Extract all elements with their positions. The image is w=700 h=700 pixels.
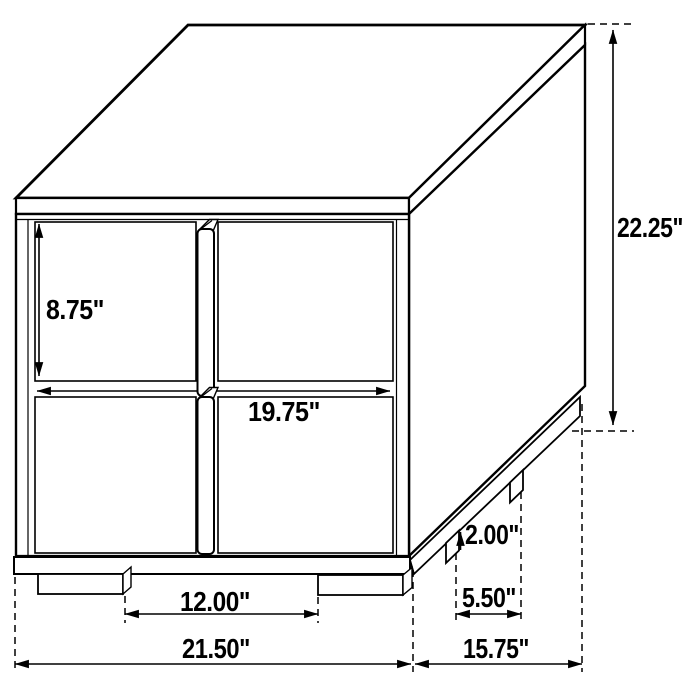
lower-drawer-handle xyxy=(198,397,215,554)
dim-label-side-feet-spacing: 5.50" xyxy=(462,582,516,613)
dim-label-overall-depth: 15.75" xyxy=(463,633,529,664)
dim-label-foot-height: 2.00" xyxy=(465,519,519,550)
dim-label-overall-width: 21.50" xyxy=(182,633,250,664)
front-left-foot xyxy=(38,574,123,594)
drawer-panel-upper-right xyxy=(218,222,393,381)
dim-label-overall-height: 22.25" xyxy=(617,212,683,243)
upper-drawer-handle xyxy=(198,229,215,396)
plinth-front xyxy=(14,557,410,574)
nightstand-dimension-diagram: 8.75" 22.25" 19.75" 12.00" 21.50" 15.75"… xyxy=(0,0,700,700)
drawer-panel-lower-left xyxy=(35,397,196,553)
dimension-diagram-page: 8.75" 22.25" 19.75" 12.00" 21.50" 15.75"… xyxy=(0,0,700,700)
top-front-edge-band xyxy=(16,198,409,214)
front-right-foot xyxy=(318,575,403,595)
dim-label-front-feet-spacing: 12.00" xyxy=(180,586,250,617)
drawer-handles xyxy=(198,220,219,555)
dim-label-front-drawer-width: 19.75" xyxy=(248,396,320,427)
dim-label-drawer-height: 8.75" xyxy=(46,294,104,325)
